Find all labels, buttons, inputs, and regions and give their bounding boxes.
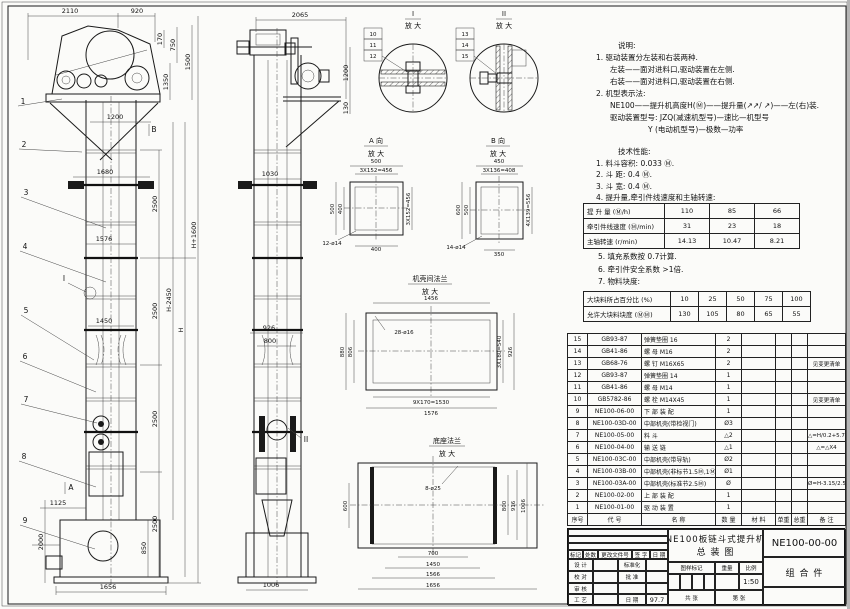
dim-2500-1: 2500 — [151, 196, 159, 213]
va-dim-left2: 400 — [338, 203, 344, 214]
vb-dim-right: 4X139=556 — [526, 193, 532, 226]
specs-block-2: 5. 填充系数按 0.7计算. 6. 牵引件安全系数 >1倍. 7. 物料块度: — [598, 251, 838, 289]
sign-check: 校 对 — [568, 571, 593, 583]
table-row: 7NE100-05-00料 斗△2△=H/0.2+5.75 — [568, 430, 846, 442]
svg-text:6: 6 — [23, 352, 28, 361]
sheet-total: 共 张 — [668, 590, 715, 606]
fm-dim-right: 3X180=540 — [497, 335, 503, 368]
flange-mid: 机壳间法兰 放 大 1456 28-ø16 880 806 3X180=540 … — [340, 274, 514, 417]
fm-holes: 28-ø16 — [394, 330, 414, 336]
va-dim-top2: 3X152=456 — [360, 168, 393, 174]
table-row: 10GB5782-86螺 栓 M14X451见变更清单 — [568, 394, 846, 406]
rev-header-doc: 更改文件号 — [598, 550, 632, 559]
svg-text:1: 1 — [21, 97, 26, 106]
vb-dim-top: 450 — [494, 159, 505, 165]
scale-value: 1:50 — [739, 574, 763, 590]
table-row: 8NE100-03D-00中部机壳(带检视门)Ø3 — [568, 418, 846, 430]
dim-1576: 1576 — [96, 235, 113, 243]
fb-dim-right: 800 — [502, 500, 508, 511]
fm-dim-bottom2: 1576 — [424, 411, 438, 417]
dim-850: 850 — [140, 542, 148, 554]
part-class: 组 合 件 — [763, 557, 846, 587]
note-line: NE100——提升机高度H(Ⓜ)——提升量(↗↗/ ↗)——左(右)装. — [610, 100, 846, 112]
note-line: 1. 驱动装置分左装和右装两种. — [596, 52, 846, 64]
drawing-title-line2: 总 装 图 — [697, 545, 735, 558]
note-line: 左装——面对进料口,驱动装置在左侧. — [610, 64, 846, 76]
spec-item: 5. 填充系数按 0.7计算. — [598, 251, 838, 264]
view-b-subtitle: 放 大 — [490, 149, 506, 158]
detail-ii-title: II — [502, 10, 506, 18]
mark-header: 图样标记 — [668, 562, 715, 574]
dim-1500: 1500 — [184, 54, 192, 71]
fb-dim-bottom4: 1656 — [426, 583, 440, 589]
fb-holes: 8-ø25 — [425, 486, 441, 492]
dim-750: 750 — [169, 39, 177, 51]
svg-text:13: 13 — [462, 32, 469, 38]
view-a-marker: A — [68, 483, 74, 492]
detail-ii-subtitle: 放 大 — [496, 21, 512, 30]
spec-table-capacity: 提 升 量 (Ⓜ/h)1108566 牵引件线速度 (Ⓜ/min)312318 … — [583, 203, 800, 249]
table-row: 5NE100-03C-00中部机壳(带导轨)Ø2 — [568, 454, 846, 466]
table-row: 14GB41-86螺 母 M162 — [568, 346, 846, 358]
sheet-number: 第 张 — [715, 590, 763, 606]
rev-header-date: 日 期 — [650, 550, 668, 559]
notes-block: 说明: 1. 驱动装置分左装和右装两种. 左装——面对进料口,驱动装置在左侧. … — [588, 40, 846, 136]
dim-h-1600: H+1600 — [190, 222, 198, 249]
spec-item: 4. 提升量,牵引件线速度和主轴转速: — [596, 192, 846, 204]
vb-dim-left2: 500 — [464, 204, 470, 215]
svg-text:15: 15 — [462, 54, 469, 60]
dim-1656: 1656 — [100, 583, 117, 591]
flange-base-title: 底座法兰 — [433, 436, 461, 445]
specs-title: 技术性能: — [618, 146, 846, 158]
va-dim-bottom: 400 — [371, 247, 382, 253]
note-line: 2. 机型表示法: — [596, 88, 846, 100]
sign-date-value: 97.7 — [646, 594, 668, 606]
rev-header-mark: 标记 — [568, 550, 583, 559]
dim-2065: 2065 — [292, 11, 309, 19]
fb-dim-left: 600 — [343, 500, 349, 511]
dim-1350: 1350 — [162, 74, 170, 91]
fb-dim-bottom2: 1450 — [426, 562, 440, 568]
view-a-title: A 向 — [369, 136, 383, 145]
table-row: 15GB93-87弹簧垫圈 162 — [568, 334, 846, 346]
svg-text:3: 3 — [24, 188, 29, 197]
spec-item: 6. 牵引件安全系数 >1倍. — [598, 264, 838, 277]
svg-text:11: 11 — [370, 43, 377, 49]
table-row: 12GB93-87弹簧垫圈 141 — [568, 370, 846, 382]
table-row: 6NE100-04-00输 送 链△1△=△X4 — [568, 442, 846, 454]
detail-i-marker: I — [63, 274, 65, 283]
detail-i-balloons: 10 11 12 — [364, 28, 407, 72]
dim-2500-4: 2500 — [151, 516, 159, 533]
spec-item: 1. 料斗容积: 0.033 Ⓜ. — [596, 158, 846, 170]
svg-text:7: 7 — [24, 395, 29, 404]
sign-audit: 审 核 — [568, 583, 593, 594]
vb-holes: 14-ø14 — [446, 245, 466, 251]
dim-h-2450: H-2450 — [165, 288, 173, 312]
side-view-drawing: 2065 1200 130 1030 926 800 1006 II — [237, 11, 350, 590]
dim-2500-3: 2500 — [151, 411, 159, 428]
va-holes: 12-ø14 — [322, 241, 342, 247]
dim-1006: 1006 — [263, 581, 280, 589]
svg-text:10: 10 — [370, 32, 377, 38]
table-row: 4NE100-03B-00中部机壳(非标节1.5Ⓜ,1Ⓜ)Ø1 — [568, 466, 846, 478]
view-a: A 向 放 大 500 3X152=456 500 400 3X152=456 … — [322, 136, 412, 253]
spec-table-lump-size: 大块料所占百分比 (%)10255075100 允许大块料块度 (ⓂⓂ)1301… — [583, 291, 811, 322]
sign-process: 工 艺 — [568, 594, 593, 606]
fb-dim-bottom: 700 — [428, 551, 439, 557]
dim-1030: 1030 — [262, 170, 279, 178]
vb-dim-left: 600 — [456, 204, 462, 215]
flange-mid-subtitle: 放 大 — [422, 287, 438, 296]
sign-date-label: 日 期 — [618, 594, 646, 606]
dim-2000: 2000 — [37, 534, 45, 551]
flange-base-subtitle: 放 大 — [439, 449, 455, 458]
svg-text:14: 14 — [462, 43, 469, 49]
sign-design: 设 计 — [568, 559, 593, 571]
fm-dim-top: 1456 — [424, 296, 438, 302]
dim-920: 920 — [131, 7, 143, 15]
dim-2500-2: 2500 — [151, 303, 159, 320]
vb-dim-bottom: 350 — [494, 252, 505, 258]
va-dim-right: 3X152=456 — [406, 192, 412, 225]
spec-item: 7. 物料块度: — [598, 276, 838, 289]
spec-item: 2. 斗 距: 0.4 Ⓜ. — [596, 169, 846, 181]
detail-i: I 放 大 10 11 12 — [364, 10, 447, 112]
table-row: 11GB41-86螺 母 M141 — [568, 382, 846, 394]
svg-text:5: 5 — [24, 306, 29, 315]
dim-side-1200: 1200 — [342, 65, 350, 82]
detail-i-title: I — [412, 10, 414, 18]
detail-ii-balloons: 13 14 15 — [456, 28, 497, 74]
fb-dim-right3: 1006 — [521, 499, 527, 513]
view-a-subtitle: 放 大 — [368, 149, 384, 158]
weight-header: 重量 — [715, 562, 739, 574]
front-view-drawing: 2110 920 170 750 1350 1500 1200 1680 157… — [18, 7, 201, 595]
dim-1200: 1200 — [107, 113, 124, 121]
dim-1450: 1450 — [96, 317, 113, 325]
view-b: B 向 放 大 450 3X136=408 600 500 4X139=556 … — [446, 136, 532, 258]
detail-ii: II 放 大 13 14 15 — [456, 10, 538, 112]
svg-text:8: 8 — [22, 452, 27, 461]
svg-text:2: 2 — [22, 140, 27, 149]
scale-header: 比例 — [739, 562, 763, 574]
detail-ii-marker: II — [304, 435, 308, 444]
fm-dim-left: 880 — [340, 346, 346, 357]
table-row: 1NE100-01-00驱 动 装 置1 — [568, 502, 846, 514]
title-block: 标记 处数 更改文件号 签 字 日 期 设 计 标准化 校 对 批 准 审 核 … — [567, 528, 845, 605]
fm-dim-right2: 926 — [508, 346, 514, 357]
fb-dim-right2: 916 — [511, 500, 517, 511]
bom-header-row: 序号代 号名 称数 量材 料单重总重备 注 — [568, 514, 846, 526]
flange-mid-title: 机壳间法兰 — [413, 274, 448, 283]
va-dim-left: 500 — [330, 203, 336, 214]
specs-block: 技术性能: 1. 料斗容积: 0.033 Ⓜ. 2. 斗 距: 0.4 Ⓜ. 3… — [588, 146, 846, 204]
svg-text:9: 9 — [23, 516, 28, 525]
table-row: 2NE100-02-00上 部 装 配1 — [568, 490, 846, 502]
notes-title: 说明: — [618, 40, 846, 52]
dim-170: 170 — [156, 33, 164, 45]
view-b-title: B 向 — [491, 136, 505, 145]
dim-2110: 2110 — [62, 7, 79, 15]
dim-130: 130 — [342, 102, 350, 114]
dim-1125: 1125 — [50, 499, 67, 507]
drawing-number: NE100-00-00 — [763, 529, 846, 557]
svg-text:12: 12 — [370, 54, 377, 60]
fm-dim-left2: 806 — [348, 346, 354, 357]
dim-1680: 1680 — [97, 168, 114, 176]
note-line: Y (电动机型号)—极数—功率 — [648, 124, 846, 136]
drawing-title-line1: NE100板链斗式提升机 — [668, 533, 763, 545]
va-dim-top: 500 — [371, 159, 382, 165]
flange-base: 底座法兰 放 大 8-ø25 600 800 916 1006 700 1450… — [343, 436, 545, 589]
dim-926: 926 — [263, 324, 275, 332]
engineering-drawing-sheet: { "front": { "dim_2110":"2110","dim_920"… — [0, 0, 850, 609]
table-row: 3NE100-03A-00中部机壳(标准节2.5Ⓜ)ØØ=H-3.15/2.5 — [568, 478, 846, 490]
note-line: 右装——面对进料口,驱动装置在右侧. — [610, 76, 846, 88]
table-row: 9NE100-06-00下 部 装 配1 — [568, 406, 846, 418]
fm-dim-bottom: 9X170=1530 — [413, 400, 450, 406]
table-row: 13GB68-76螺 钉 M16X652见变更清单 — [568, 358, 846, 370]
front-balloons: 1 2 3 4 5 6 7 8 9 — [18, 97, 106, 549]
fb-dim-bottom3: 1566 — [426, 572, 440, 578]
spec-item: 3. 斗 宽: 0.4 Ⓜ. — [596, 181, 846, 193]
rev-header-sign: 签 字 — [632, 550, 650, 559]
vb-dim-top2: 3X136=408 — [483, 168, 516, 174]
dim-800: 800 — [264, 337, 276, 345]
note-line: 驱动装置型号: JZQ(减速机型号)—速比—机型号 — [610, 112, 846, 124]
sign-standard: 标准化 — [618, 559, 646, 571]
dim-h: H — [177, 327, 185, 332]
bom-table: 15GB93-87弹簧垫圈 162 14GB41-86螺 母 M162 13GB… — [567, 333, 846, 526]
detail-i-subtitle: 放 大 — [405, 21, 421, 30]
rev-header-count: 处数 — [583, 550, 598, 559]
sign-approve: 批 准 — [618, 571, 646, 583]
svg-text:4: 4 — [23, 242, 28, 251]
view-b-marker: B — [151, 125, 156, 134]
